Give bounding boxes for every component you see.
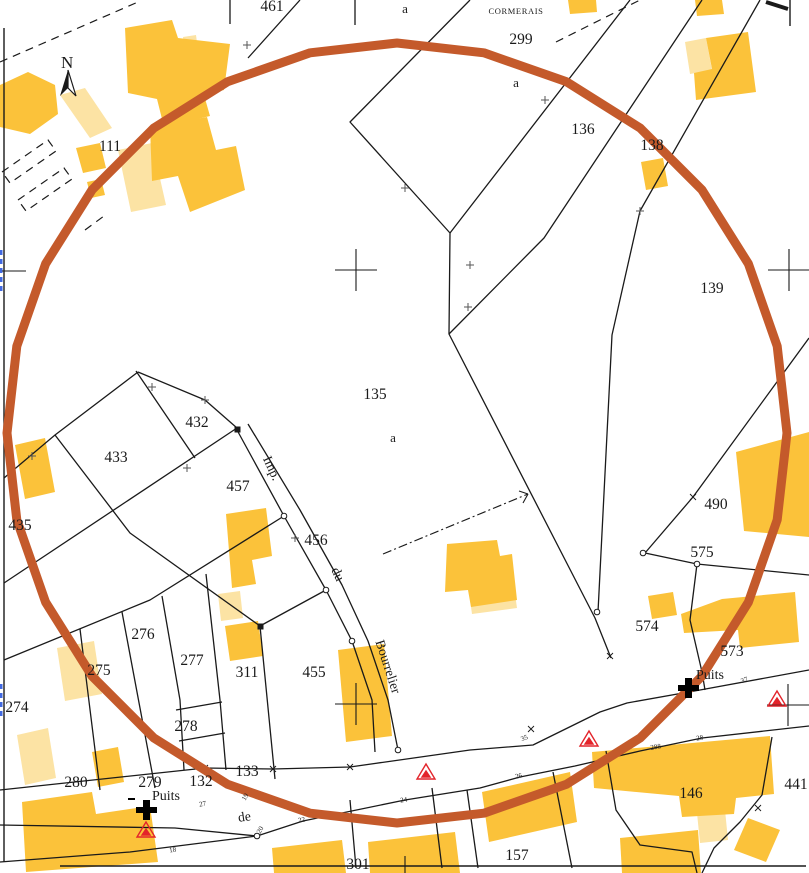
- parcel-label-111: 111: [99, 138, 121, 155]
- building: [22, 792, 158, 872]
- parcel-label-574: 574: [635, 618, 659, 635]
- subdivision-letter: a: [513, 75, 519, 90]
- parcel-label-274: 274: [5, 699, 29, 716]
- building: [15, 438, 55, 499]
- parcel-label-139: 139: [700, 280, 724, 297]
- parcel-label-311: 311: [236, 664, 259, 681]
- road-number: 22: [298, 815, 307, 824]
- parcel-label-146: 146: [679, 785, 703, 802]
- street-label-du: du: [328, 565, 347, 584]
- label-layer: CORMERAIS 461 299 111 136 138 139 135 43…: [5, 0, 807, 873]
- parcel-label-435: 435: [8, 517, 32, 534]
- subdivision-letter: a: [402, 1, 408, 16]
- well-label: Puits: [696, 668, 724, 683]
- building: [568, 0, 597, 14]
- parcel-label-278: 278: [174, 718, 198, 735]
- parcel-label-138: 138: [640, 137, 664, 154]
- cadastral-map: N CORMERAIS 461 299 111 136: [0, 0, 809, 873]
- parcel-label-275: 275: [87, 662, 111, 679]
- building-annex: [218, 591, 243, 621]
- building: [695, 0, 724, 16]
- sheet-corner-arrow: [766, 2, 788, 9]
- street-label-de: de: [237, 808, 252, 825]
- road-number: 27: [199, 799, 208, 808]
- parcel-label-573: 573: [720, 643, 744, 660]
- triangle-marker: [580, 731, 598, 746]
- north-label: N: [61, 53, 73, 72]
- building: [734, 818, 780, 862]
- parcel-label-280: 280: [64, 774, 88, 791]
- parcel-label-136: 136: [571, 121, 595, 138]
- road-number: 37: [740, 675, 750, 685]
- parcel-label-433: 433: [104, 449, 128, 466]
- parcel-label-301: 301: [346, 856, 369, 873]
- parcel-label-575: 575: [690, 544, 714, 561]
- road-number: 28: [696, 734, 705, 743]
- parcel-label-276: 276: [131, 626, 155, 643]
- building-annex: [60, 88, 112, 138]
- radius-circle-overlay: [7, 43, 787, 823]
- subdivision-letter: a: [390, 430, 396, 445]
- parcel-boundaries: [4, 0, 809, 873]
- parcel-label-133: 133: [235, 763, 259, 780]
- place-label: CORMERAIS: [489, 6, 544, 16]
- parcel-label-277: 277: [180, 652, 204, 669]
- parcel-label-461: 461: [260, 0, 283, 15]
- parcel-label-432: 432: [185, 414, 208, 431]
- parcel-label-135: 135: [363, 386, 387, 403]
- road-number: 26: [514, 771, 523, 780]
- building-layer: [0, 0, 809, 873]
- building: [225, 621, 263, 661]
- building: [0, 72, 58, 134]
- road-number: 35: [520, 733, 530, 743]
- parcel-label-456: 456: [304, 532, 328, 549]
- parcel-label-157: 157: [505, 847, 529, 864]
- building: [368, 832, 460, 873]
- parcel-label-132: 132: [189, 773, 212, 790]
- boundary-plus-ticks: [28, 41, 644, 542]
- triangle-marker: [417, 764, 435, 779]
- triangle-marker: [768, 691, 786, 706]
- parcel-label-299: 299: [509, 31, 533, 48]
- parcel-label-490: 490: [704, 496, 728, 513]
- north-arrow-icon: N: [60, 53, 76, 96]
- road-number: 24: [400, 796, 409, 805]
- parcel-label-455: 455: [302, 664, 326, 681]
- building: [648, 592, 677, 619]
- well-label: Puits: [152, 789, 180, 804]
- parcel-label-441: 441: [784, 776, 807, 793]
- building: [445, 540, 517, 607]
- parcel-label-457: 457: [226, 478, 250, 495]
- map-canvas: N CORMERAIS 461 299 111 136: [0, 0, 809, 873]
- building: [272, 840, 346, 873]
- building-annex: [17, 728, 56, 785]
- road-number: 288: [650, 742, 662, 751]
